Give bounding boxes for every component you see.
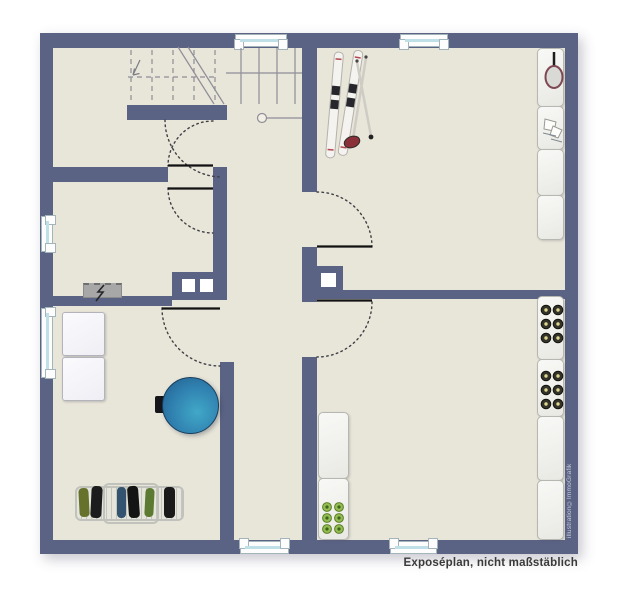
watermark: illustration©ImmoGrafik (566, 440, 578, 538)
shelf-segment (318, 478, 349, 540)
wall-center-lower (302, 357, 317, 540)
wall-laundry (220, 362, 234, 540)
chimney-flue (321, 273, 336, 287)
plan-caption: Exposéplan, nicht maßstäblich (403, 557, 578, 569)
shelf-segment (537, 296, 564, 360)
tumble-dryer (62, 357, 105, 401)
window (235, 34, 287, 47)
electrical-panel (83, 283, 122, 298)
shelf-segment (537, 195, 564, 240)
window (41, 216, 53, 252)
floorplan-canvas: illustration©ImmoGrafik Exposéplan, nich… (0, 0, 618, 600)
sports-shelf (537, 48, 564, 239)
window (41, 308, 53, 378)
window-glass (245, 546, 284, 549)
window (390, 541, 437, 554)
wall-bottom (40, 540, 578, 554)
chimney-flue (182, 279, 195, 292)
bottle-shelf-left (318, 412, 349, 539)
window-glass (240, 39, 282, 42)
wall-stub-vertical (213, 167, 227, 273)
shelf-segment (537, 480, 564, 540)
window (240, 541, 289, 554)
wall-top (40, 33, 578, 48)
drying-rack-middle (103, 483, 159, 524)
chimney-flue (200, 279, 213, 292)
wall-under-stairs (127, 105, 227, 120)
boiler (162, 377, 219, 434)
shelf-segment (537, 359, 564, 417)
shelf-segment (537, 149, 564, 196)
shelf-segment (537, 48, 564, 107)
shelf-segment (318, 412, 349, 479)
window-glass (46, 313, 49, 373)
wall-center-upper (302, 48, 317, 192)
window-glass (395, 546, 432, 549)
wall-mid-right (317, 290, 565, 299)
bottle-shelf-right (537, 296, 564, 539)
shelf-segment (537, 416, 564, 481)
wall-left (40, 33, 53, 554)
window (400, 34, 448, 47)
washing-machine (62, 312, 105, 356)
shelf-segment (537, 106, 564, 150)
window-glass (405, 39, 443, 42)
wall-left-middle (40, 167, 168, 182)
window-glass (46, 221, 49, 247)
